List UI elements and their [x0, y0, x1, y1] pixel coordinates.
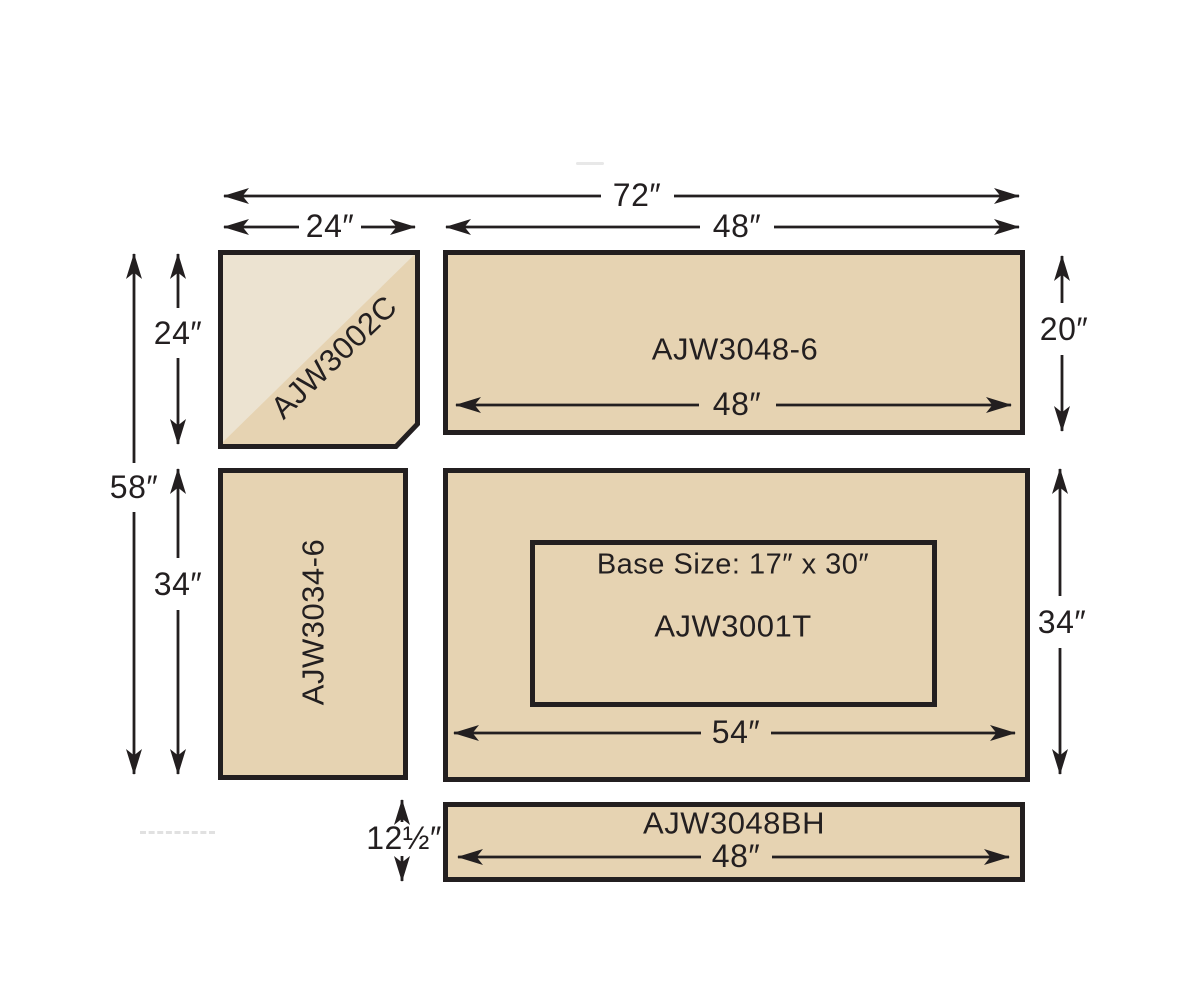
backsplash-height-label: 12½″ — [366, 822, 442, 854]
overall-width-label: 72″ — [613, 179, 661, 211]
top-inner-width-label: 48″ — [713, 388, 761, 420]
dimension-diagram: 72″ 24″ 48″ 58″ 24″ 34″ 20″ 34″ 48″ 54″ … — [0, 0, 1200, 1000]
top-right-height-label: 20″ — [1040, 313, 1088, 345]
diagram-shapes — [0, 0, 1200, 1000]
corner-height-label: 24″ — [154, 317, 202, 349]
top-width-label: 48″ — [713, 210, 761, 242]
scan-artifact-dashes — [140, 831, 215, 834]
panel-label-ajw3048-6: AJW3048-6 — [652, 334, 818, 365]
overall-height-label: 58″ — [110, 471, 158, 503]
panel-label-ajw3034-6: AJW3034-6 — [298, 539, 329, 705]
corner-width-label: 24″ — [306, 210, 354, 242]
center-inner-width-label: 54″ — [712, 716, 760, 748]
scan-artifact-smudge — [576, 162, 604, 165]
panel-label-ajw3048bh: AJW3048BH — [643, 808, 825, 839]
left-height-label: 34″ — [154, 568, 202, 600]
base-size-label: Base Size: 17″ x 30″ — [597, 551, 869, 580]
bottom-inner-width-label: 48″ — [712, 840, 760, 872]
panel-label-ajw3001t: AJW3001T — [654, 611, 811, 642]
right-height-label: 34″ — [1038, 606, 1086, 638]
